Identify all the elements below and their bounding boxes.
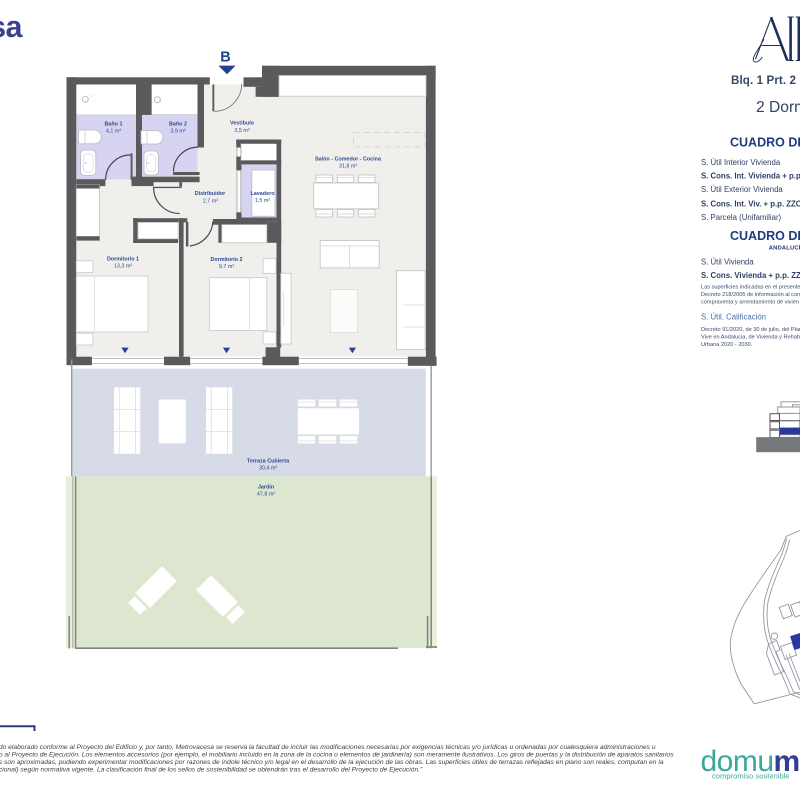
svg-text:S. Útil Vivienda: S. Útil Vivienda — [701, 258, 754, 267]
svg-text:ís son aproximadas, pudiendo e: ís son aproximadas, pudiendo experimenta… — [0, 759, 664, 766]
svg-text:CUADRO DE SUPERFICIES: CUADRO DE SUPERFICIES — [730, 229, 800, 243]
svg-text:S. Útil. Calificación: S. Útil. Calificación — [701, 313, 766, 322]
svg-text:3,5 m²: 3,5 m² — [234, 128, 249, 134]
svg-text:Urbana 2020 - 2030.: Urbana 2020 - 2030. — [701, 342, 753, 348]
svg-text:2,7 m²: 2,7 m² — [203, 198, 218, 204]
svg-text:S. Parcela (Unifamiliar): S. Parcela (Unifamiliar) — [701, 213, 782, 222]
svg-text:4,1 m²: 4,1 m² — [106, 128, 121, 134]
svg-text:Salón - Comedor - Cocina: Salón - Comedor - Cocina — [315, 157, 382, 163]
svg-text:3,9 m²: 3,9 m² — [170, 128, 185, 134]
svg-text:Decreto 91/2020, de 30 de juli: Decreto 91/2020, de 30 de julio, del Pla… — [701, 327, 800, 333]
svg-text:CUADRO DE SUPERFICIES: CUADRO DE SUPERFICIES — [730, 136, 800, 150]
svg-text:Baño 1: Baño 1 — [105, 121, 123, 127]
svg-text:Dormitorio 1: Dormitorio 1 — [107, 256, 139, 262]
svg-text:esa: esa — [0, 10, 24, 44]
svg-text:S. Útil Interior Vivienda: S. Útil Interior Vivienda — [701, 158, 781, 167]
svg-text:31,8 m²: 31,8 m² — [339, 164, 357, 170]
svg-text:S. Cons. Vivienda + p.p. ZZCC: S. Cons. Vivienda + p.p. ZZCC — [701, 271, 800, 280]
svg-text:13,3 m²: 13,3 m² — [114, 263, 132, 269]
svg-text:Decreto 218/2005 de informació: Decreto 218/2005 de información al con — [701, 292, 800, 298]
svg-text:Vestíbulo: Vestíbulo — [230, 121, 255, 127]
svg-text:Distribuidor: Distribuidor — [195, 191, 226, 197]
svg-text:1,5 m²: 1,5 m² — [255, 198, 270, 204]
svg-text:ANDALUCÍA DECRETO: ANDALUCÍA DECRETO — [769, 243, 800, 251]
svg-text:Jardín: Jardín — [258, 484, 274, 490]
svg-text:9,7 m²: 9,7 m² — [219, 264, 234, 270]
svg-text:ícional) según normativa vigen: ícional) según normativa vigente. La cla… — [0, 767, 423, 774]
svg-text:Blq. 1 Prt. 2 Pl: Blq. 1 Prt. 2 Pl — [731, 74, 800, 87]
svg-text:compromiso sostenible: compromiso sostenible — [712, 772, 790, 781]
svg-text:Las superficies indicadas en e: Las superficies indicadas en el presente — [701, 284, 800, 290]
svg-text:S. Útil Exterior Vivienda: S. Útil Exterior Vivienda — [701, 185, 783, 194]
svg-text:ído elaborado conforme al Proy: ído elaborado conforme al Proyecto del E… — [0, 744, 656, 751]
svg-text:47,8 m²: 47,8 m² — [257, 491, 275, 497]
svg-text:2 Dormitorios: 2 Dormitorios — [756, 99, 800, 116]
svg-text:compraventa y arrendamiento de: compraventa y arrendamiento de vivien — [701, 299, 799, 305]
svg-text:Baño 2: Baño 2 — [169, 121, 187, 127]
svg-text:Lavadero: Lavadero — [251, 191, 276, 197]
svg-text:Dormitorio 2: Dormitorio 2 — [210, 257, 242, 263]
svg-text:30,4 m²: 30,4 m² — [259, 465, 277, 471]
svg-text:ío al Proyecto de Ejecución. L: ío al Proyecto de Ejecución. Los element… — [0, 752, 674, 759]
svg-text:S. Cons. Int. Vivienda + p.p.: S. Cons. Int. Vivienda + p.p. ZZCC — [701, 172, 800, 181]
svg-text:B: B — [220, 50, 230, 66]
svg-text:S. Cons. Int. Viv. + p.p. ZZCC: S. Cons. Int. Viv. + p.p. ZZCC — [701, 200, 800, 209]
svg-text:Vive en Andalucia, de Vivienda: Vive en Andalucia, de Vivienda y Rehabi — [701, 334, 800, 340]
svg-text:Terraza Cubierta: Terraza Cubierta — [247, 458, 290, 464]
